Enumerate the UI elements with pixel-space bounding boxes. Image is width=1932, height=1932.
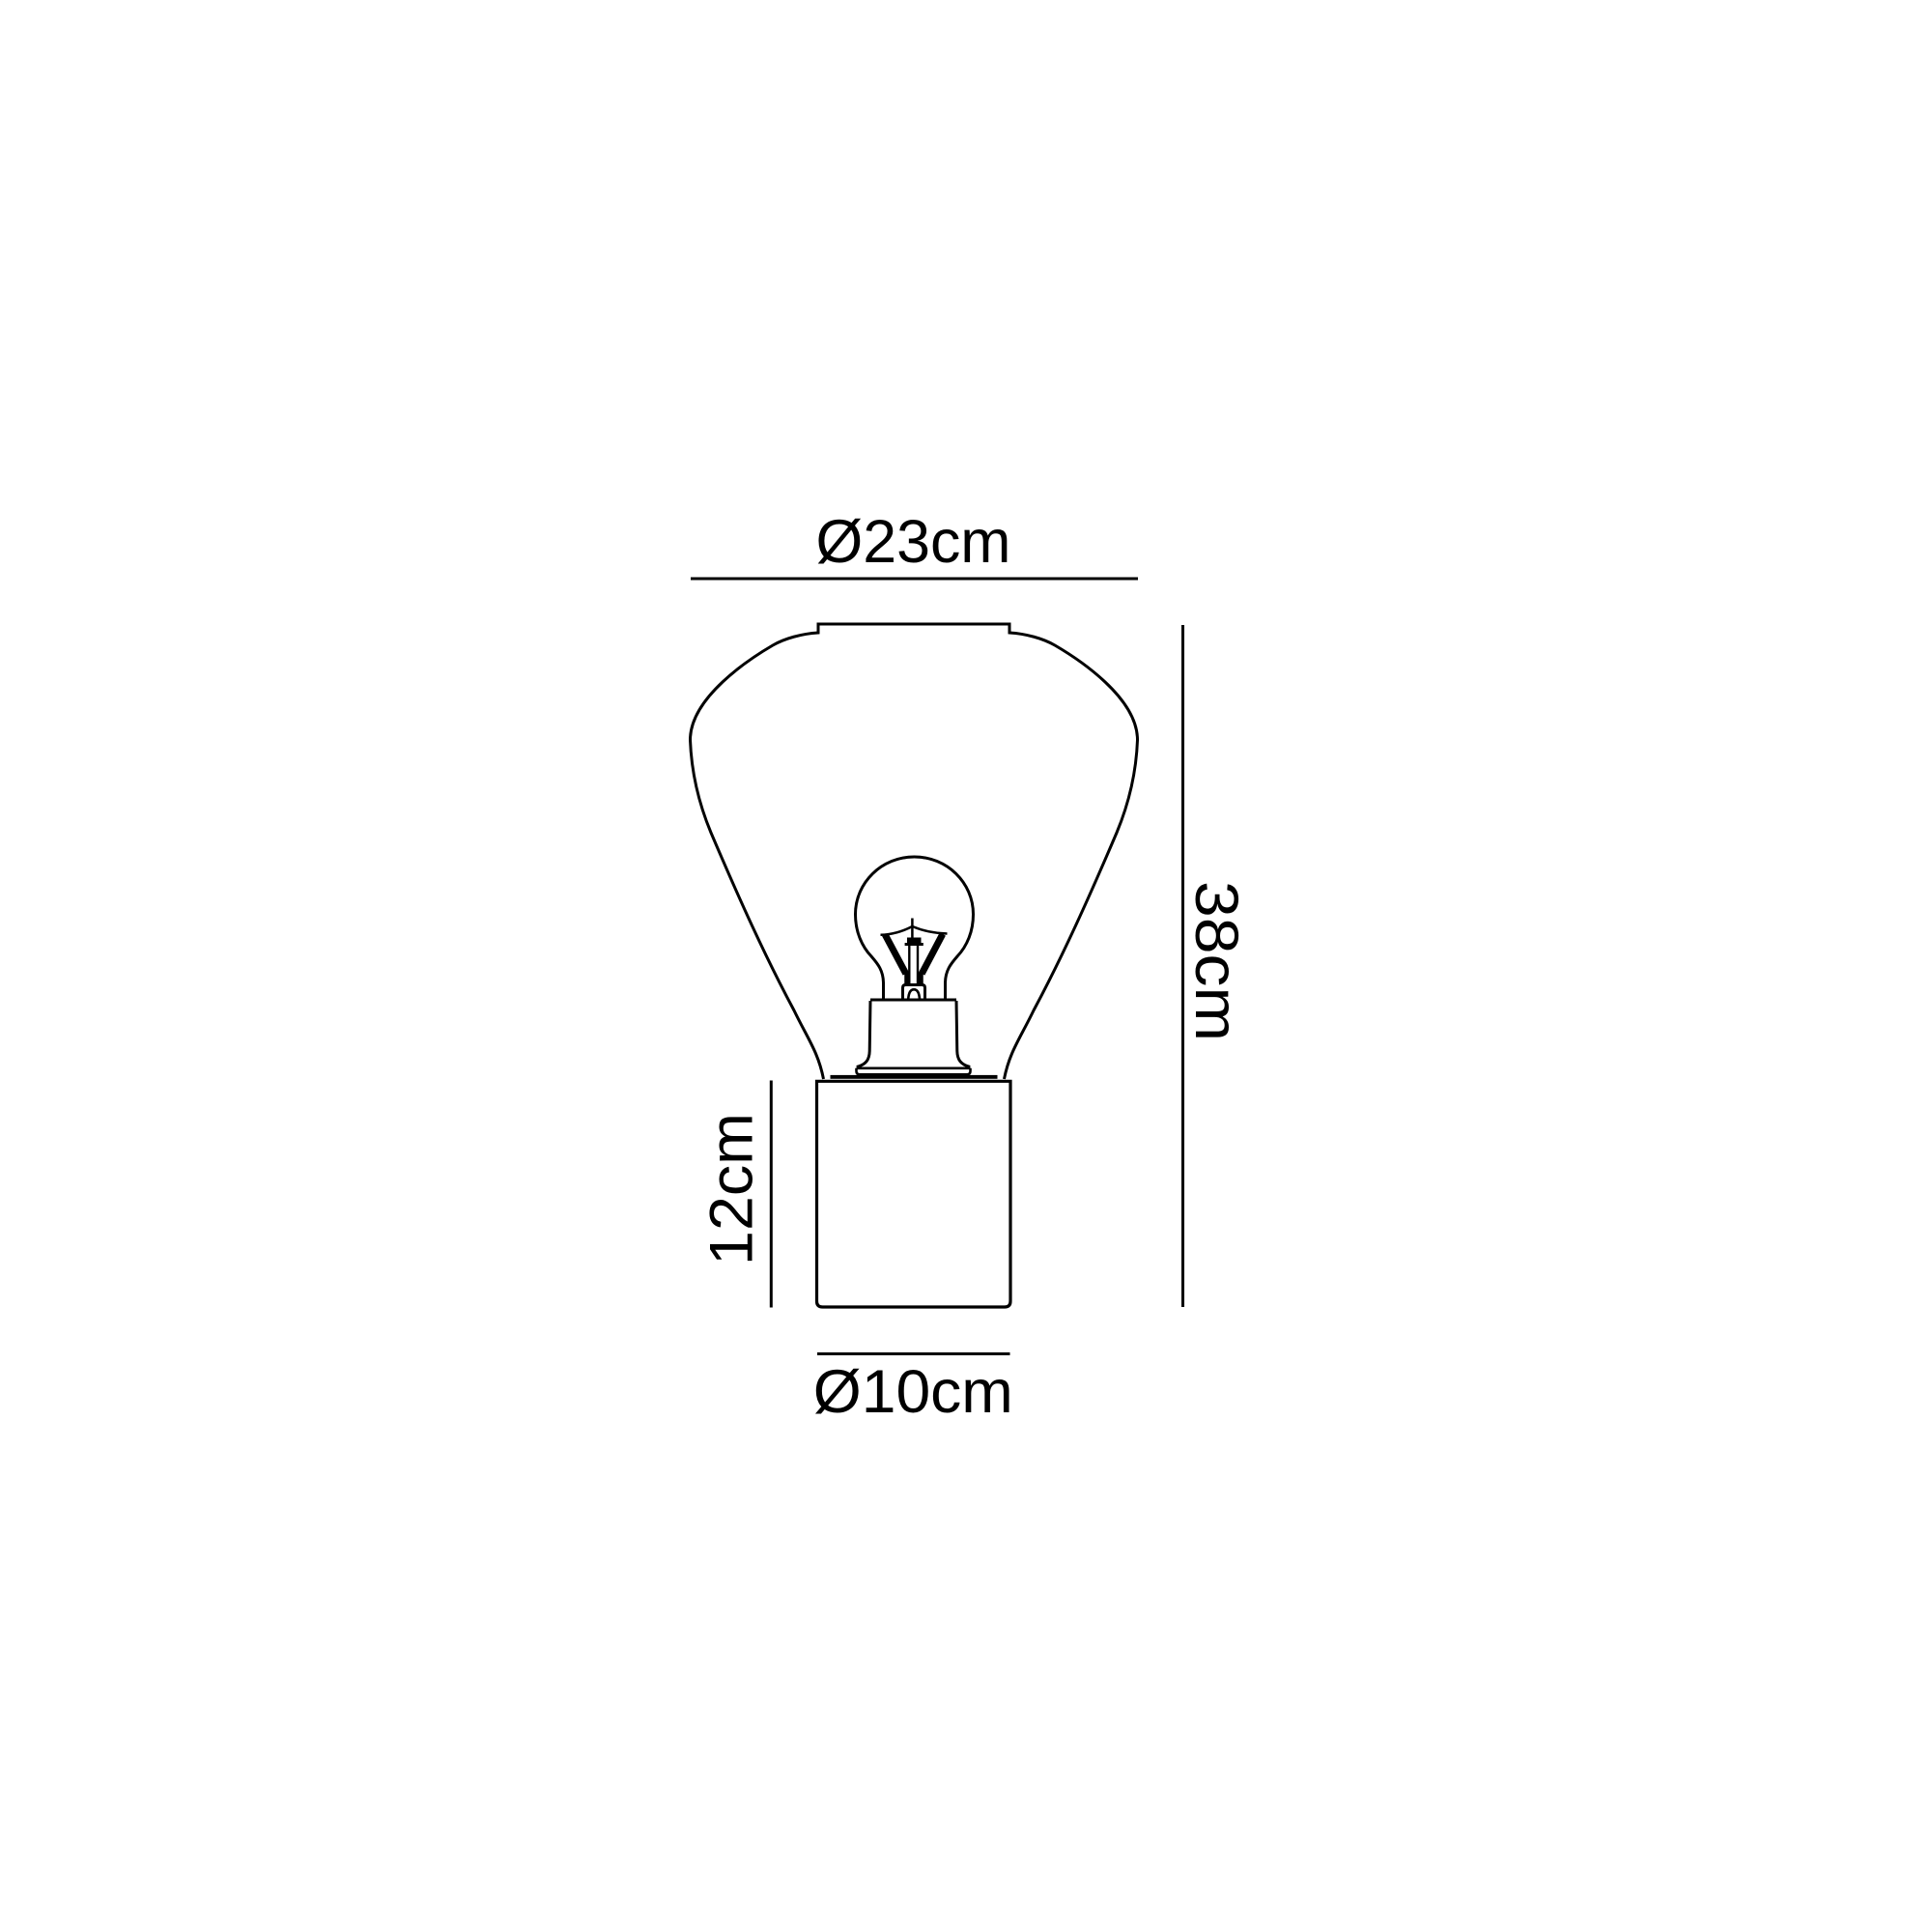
svg-text:12cm: 12cm xyxy=(698,1113,766,1265)
svg-text:38cm: 38cm xyxy=(1182,881,1250,1041)
svg-text:Ø23cm: Ø23cm xyxy=(816,508,1011,576)
svg-text:Ø10cm: Ø10cm xyxy=(813,1358,1013,1426)
